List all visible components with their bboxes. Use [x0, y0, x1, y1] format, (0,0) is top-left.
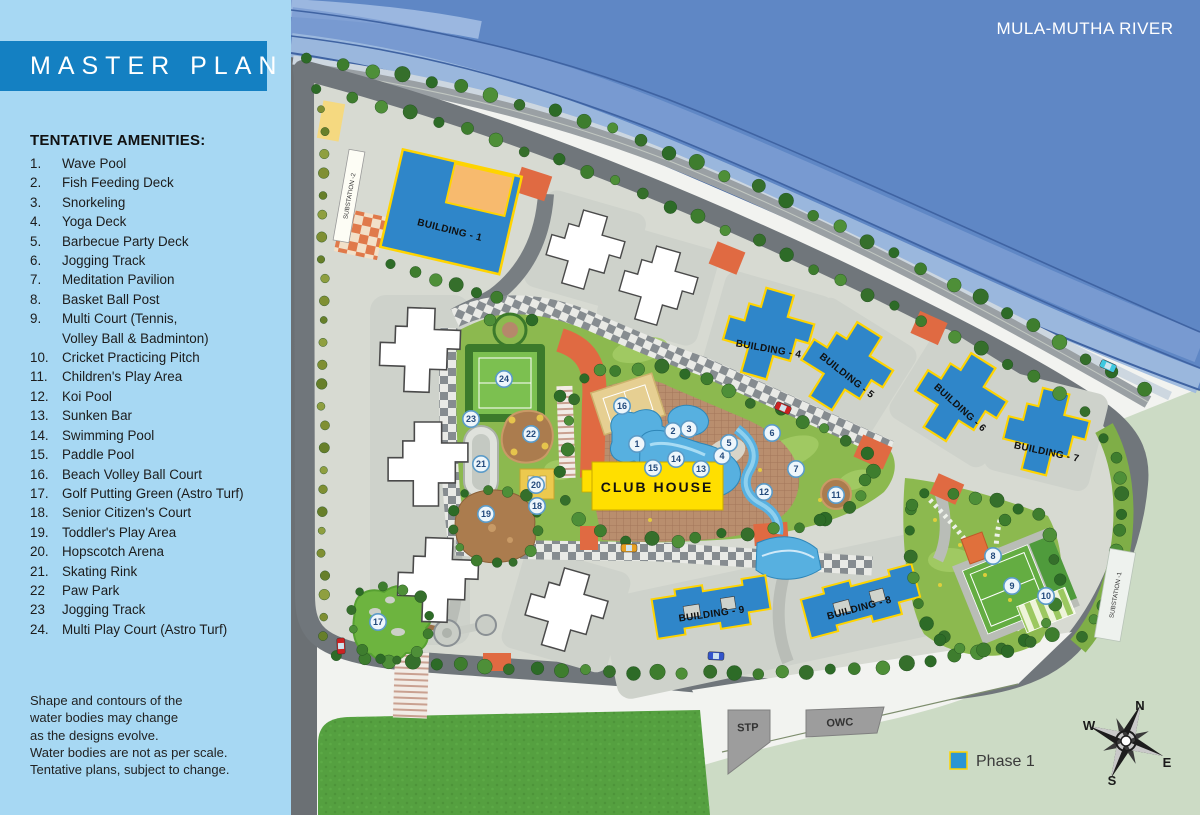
amenity-item: 18.Senior Citizen's Court — [30, 503, 270, 522]
amenity-marker: 13 — [693, 461, 709, 477]
svg-text:23: 23 — [466, 414, 476, 424]
amenity-marker: 2 — [665, 423, 681, 439]
compass-n: N — [1135, 698, 1144, 713]
amenity-item-label: Snorkeling — [62, 193, 125, 212]
amenity-marker: 12 — [756, 484, 772, 500]
svg-text:17: 17 — [373, 617, 383, 627]
amenity-item: 3.Snorkeling — [30, 193, 270, 212]
svg-text:10: 10 — [1041, 591, 1051, 601]
amenity-marker: 24 — [496, 371, 512, 387]
amenity-item-label: Beach Volley Ball Court — [62, 465, 202, 484]
amenity-item-label: Sunken Bar — [62, 406, 132, 425]
amenity-marker: 8 — [985, 548, 1001, 564]
amenity-item-number: 9. — [30, 309, 62, 348]
amenity-item-number: 1. — [30, 154, 62, 173]
compass-e: E — [1163, 755, 1172, 770]
car-icon — [708, 652, 724, 661]
disclaimer-line: water bodies may change — [30, 709, 260, 726]
amenity-item-label: Toddler's Play Area — [62, 523, 176, 542]
compass-w: W — [1083, 718, 1096, 733]
svg-text:12: 12 — [759, 487, 769, 497]
amenity-item-label: Jogging Track — [62, 251, 145, 270]
amenities-heading: TENTATIVE AMENITIES: — [30, 132, 270, 149]
svg-text:19: 19 — [481, 509, 491, 519]
amenity-item: 22Paw Park — [30, 581, 270, 600]
amenity-item-number: 18. — [30, 503, 62, 522]
amenity-item-label: Wave Pool — [62, 154, 126, 173]
amenity-item-label: Cricket Practicing Pitch — [62, 348, 200, 367]
amenity-item-number: 10. — [30, 348, 62, 367]
amenity-marker: 15 — [645, 460, 661, 476]
compass-s: S — [1108, 773, 1117, 788]
svg-text:15: 15 — [648, 463, 658, 473]
page-title: MASTER PLAN — [0, 41, 267, 91]
amenity-item-label: Basket Ball Post — [62, 290, 160, 309]
owc-label: OWC — [826, 716, 854, 729]
amenity-item-label: Swimming Pool — [62, 426, 154, 445]
amenity-item: 20.Hopscotch Arena — [30, 542, 270, 561]
amenity-item: 11.Children's Play Area — [30, 367, 270, 386]
river-label: MULA-MUTHA RIVER — [996, 19, 1173, 38]
amenity-marker: 3 — [681, 421, 697, 437]
svg-text:2: 2 — [670, 426, 675, 436]
amenity-item: 14.Swimming Pool — [30, 426, 270, 445]
amenity-item-label: Skating Rink — [62, 562, 137, 581]
svg-text:8: 8 — [990, 551, 995, 561]
amenity-item: 19.Toddler's Play Area — [30, 523, 270, 542]
amenity-item-number: 21. — [30, 562, 62, 581]
amenity-item: 15.Paddle Pool — [30, 445, 270, 464]
disclaimer-line: Water bodies are not as per scale. — [30, 744, 260, 761]
amenity-item: 24.Multi Play Court (Astro Turf) — [30, 620, 270, 639]
svg-text:4: 4 — [719, 451, 724, 461]
disclaimer-text: Shape and contours of thewater bodies ma… — [30, 692, 260, 778]
amenity-item-label: Paw Park — [62, 581, 119, 600]
amenity-item-label: Senior Citizen's Court — [62, 503, 191, 522]
svg-text:21: 21 — [476, 459, 486, 469]
svg-text:9: 9 — [1009, 581, 1014, 591]
amenity-marker: 6 — [764, 425, 780, 441]
amenity-item-label: Multi Court (Tennis, Volley Ball & Badmi… — [62, 309, 209, 348]
amenity-item-number: 11. — [30, 367, 62, 386]
amenity-marker: 17 — [370, 614, 386, 630]
clubhouse-label: CLUB HOUSE — [601, 479, 714, 495]
disclaimer-line: Tentative plans, subject to change. — [30, 761, 260, 778]
phase1-label: Phase 1 — [976, 753, 1035, 770]
amenity-item-number: 17. — [30, 484, 62, 503]
amenity-item: 10.Cricket Practicing Pitch — [30, 348, 270, 367]
disclaimer-line: Shape and contours of the — [30, 692, 260, 709]
toddlers-play-area — [455, 490, 535, 563]
owc-box: OWC — [806, 707, 884, 737]
amenity-item-number: 13. — [30, 406, 62, 425]
amenity-item: 21.Skating Rink — [30, 562, 270, 581]
amenity-item-number: 6. — [30, 251, 62, 270]
amenity-marker: 21 — [473, 456, 489, 472]
amenity-item-label: Paddle Pool — [62, 445, 134, 464]
amenities-panel: TENTATIVE AMENITIES: 1.Wave Pool2.Fish F… — [30, 132, 270, 639]
amenity-item-label: Barbecue Party Deck — [62, 232, 189, 251]
svg-text:7: 7 — [793, 464, 798, 474]
amenity-item: 16.Beach Volley Ball Court — [30, 465, 270, 484]
amenity-item: 12.Koi Pool — [30, 387, 270, 406]
amenity-item-number: 16. — [30, 465, 62, 484]
amenity-item-label: Jogging Track — [62, 600, 145, 619]
amenity-marker: 11 — [828, 487, 844, 503]
amenity-item: 23Jogging Track — [30, 600, 270, 619]
amenity-item-number: 5. — [30, 232, 62, 251]
amenity-item-label: Fish Feeding Deck — [62, 173, 174, 192]
amenity-marker: 20 — [528, 477, 544, 493]
phase1-legend: Phase 1 — [950, 752, 1035, 770]
amenity-marker: 23 — [463, 411, 479, 427]
amenity-item: 6.Jogging Track — [30, 251, 270, 270]
amenity-marker: 7 — [788, 461, 804, 477]
svg-text:3: 3 — [686, 424, 691, 434]
car-icon — [621, 544, 637, 552]
amenity-marker: 9 — [1004, 578, 1020, 594]
map-area: BUILDING - 1 BUILDING - 4 BUILDING - 5 B… — [291, 0, 1200, 815]
amenity-item-label: Koi Pool — [62, 387, 112, 406]
svg-text:24: 24 — [499, 374, 509, 384]
svg-text:22: 22 — [526, 429, 536, 439]
stp-label: STP — [737, 722, 759, 735]
amenity-item-number: 24. — [30, 620, 62, 639]
amenity-item-number: 23 — [30, 600, 62, 619]
amenity-marker: 18 — [529, 498, 545, 514]
amenity-marker: 5 — [721, 435, 737, 451]
amenity-item-number: 8. — [30, 290, 62, 309]
amenity-item-number: 15. — [30, 445, 62, 464]
amenity-item-number: 12. — [30, 387, 62, 406]
amenity-item-label: Multi Play Court (Astro Turf) — [62, 620, 227, 639]
grass-field — [318, 710, 710, 815]
svg-text:11: 11 — [831, 490, 841, 500]
amenity-item-number: 4. — [30, 212, 62, 231]
amenity-item-number: 3. — [30, 193, 62, 212]
amenity-item: 7.Meditation Pavilion — [30, 270, 270, 289]
amenity-marker: 1 — [629, 436, 645, 452]
amenity-item: 4.Yoga Deck — [30, 212, 270, 231]
sidebar: MASTER PLAN TENTATIVE AMENITIES: 1.Wave … — [0, 0, 291, 815]
amenities-list: 1.Wave Pool2.Fish Feeding Deck3.Snorkeli… — [30, 154, 270, 639]
amenity-marker: 19 — [478, 506, 494, 522]
disclaimer-line: as the designs evolve. — [30, 727, 260, 744]
svg-text:16: 16 — [617, 401, 627, 411]
master-plan-map: BUILDING - 1 BUILDING - 4 BUILDING - 5 B… — [291, 0, 1200, 815]
amenity-item: 1.Wave Pool — [30, 154, 270, 173]
amenity-item: 2.Fish Feeding Deck — [30, 173, 270, 192]
amenity-marker: 22 — [523, 426, 539, 442]
amenity-item: 8.Basket Ball Post — [30, 290, 270, 309]
amenity-item: 13.Sunken Bar — [30, 406, 270, 425]
amenity-item-number: 22 — [30, 581, 62, 600]
amenity-item-label: Children's Play Area — [62, 367, 182, 386]
svg-text:18: 18 — [532, 501, 542, 511]
master-plan-page: MASTER PLAN TENTATIVE AMENITIES: 1.Wave … — [0, 0, 1200, 815]
roundabout-small — [476, 615, 496, 635]
amenity-item-number: 14. — [30, 426, 62, 445]
svg-text:20: 20 — [531, 480, 541, 490]
amenity-item-label: Meditation Pavilion — [62, 270, 174, 289]
amenity-item-number: 20. — [30, 542, 62, 561]
amenity-item-number: 19. — [30, 523, 62, 542]
amenity-item-number: 7. — [30, 270, 62, 289]
svg-text:6: 6 — [769, 428, 774, 438]
amenity-item: 9.Multi Court (Tennis, Volley Ball & Bad… — [30, 309, 270, 348]
page-title-text: MASTER PLAN — [30, 52, 283, 81]
svg-text:14: 14 — [671, 454, 681, 464]
amenity-marker: 10 — [1038, 588, 1054, 604]
car-icon — [337, 638, 346, 654]
amenity-item-number: 2. — [30, 173, 62, 192]
phase1-swatch — [950, 752, 967, 769]
amenity-marker: 16 — [614, 398, 630, 414]
svg-text:5: 5 — [726, 438, 731, 448]
amenity-item-label: Hopscotch Arena — [62, 542, 164, 561]
amenity-item: 17.Golf Putting Green (Astro Turf) — [30, 484, 270, 503]
amenity-item-label: Yoga Deck — [62, 212, 126, 231]
svg-text:1: 1 — [634, 439, 639, 449]
amenity-marker: 14 — [668, 451, 684, 467]
amenity-item: 5.Barbecue Party Deck — [30, 232, 270, 251]
svg-text:13: 13 — [696, 464, 706, 474]
roundabout-center — [442, 628, 452, 638]
amenity-item-label: Golf Putting Green (Astro Turf) — [62, 484, 244, 503]
